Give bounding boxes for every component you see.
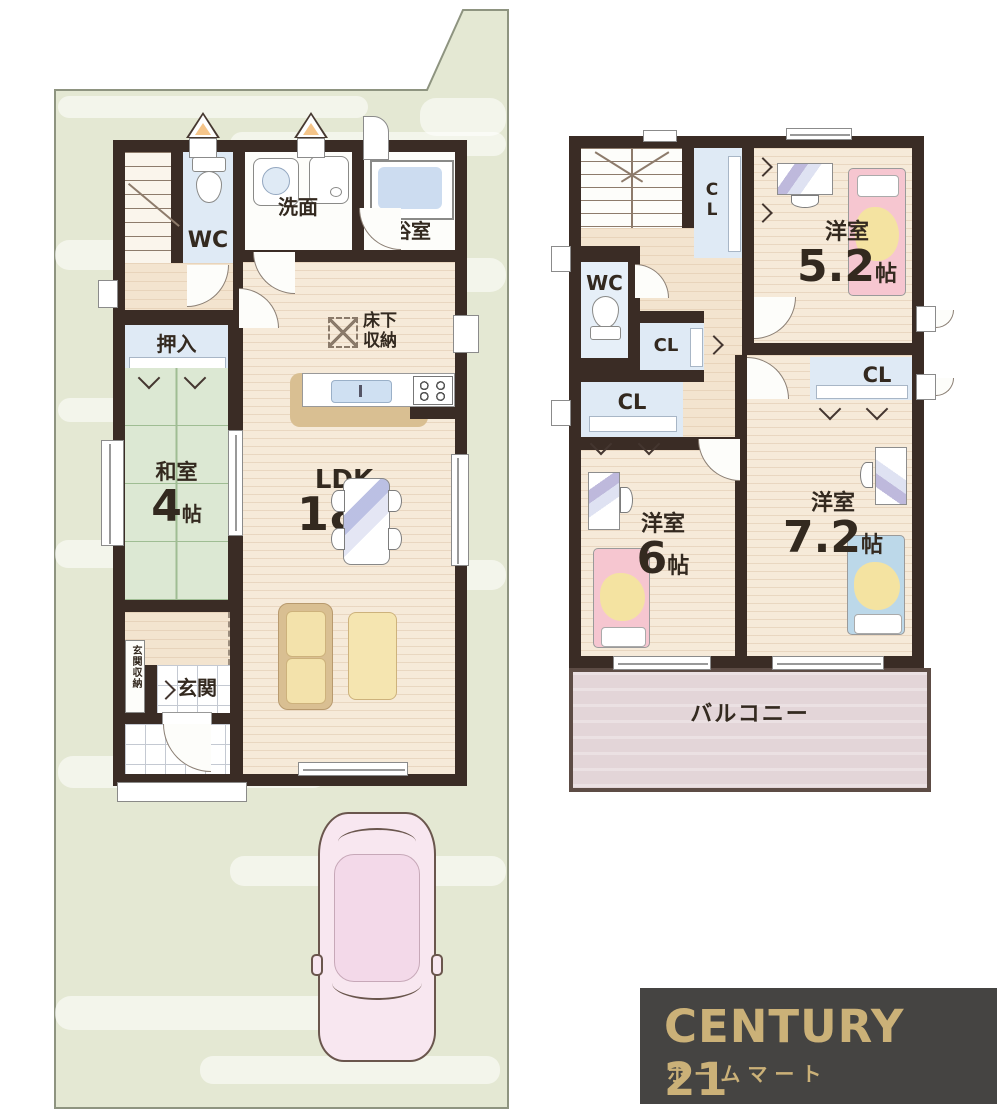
window-line	[303, 769, 405, 771]
closet-wide-label: CL	[581, 390, 683, 414]
ldk-bottom-window	[298, 762, 408, 776]
bedroom-7-2-size: 7.2帖	[763, 513, 903, 564]
balcony: バルコニー	[569, 668, 931, 792]
dining-window	[451, 454, 469, 566]
sliding-door-line	[235, 435, 237, 531]
floor2-bedroom-6: 洋室 6帖	[581, 450, 735, 656]
balcony-label: バルコニー	[573, 702, 927, 727]
window-line	[109, 444, 111, 544]
closet-door-band	[589, 416, 677, 432]
tatami-window	[101, 440, 124, 546]
bedroom-5-2-size: 5.2帖	[777, 242, 917, 293]
bedroom-7-2-window	[916, 374, 936, 400]
bedroom-7-2-size-number: 7.2	[783, 512, 861, 563]
kitchen-faucet-icon	[359, 385, 362, 397]
floor2-bedroom-7-2: CL 洋室 7.2帖	[747, 355, 912, 656]
wall	[581, 358, 640, 382]
floor2-stairs	[581, 148, 682, 228]
stairs-diagonal	[128, 183, 180, 227]
brand-logo-box: CENTURY 21 ホームマート	[640, 988, 997, 1104]
bed-pillow	[854, 614, 902, 634]
closet-7-2-label: CL	[842, 363, 912, 387]
vent-base	[189, 138, 217, 158]
bedroom-5-2-size-unit: 帖	[875, 262, 897, 287]
kitchen-half-wall	[410, 407, 455, 419]
floor1-oshiire-closet: 押入	[125, 325, 228, 368]
floor1-entrance-storage: 玄関収納	[125, 640, 145, 713]
wall	[637, 311, 704, 323]
tatami-size-label: 4帖	[125, 482, 228, 533]
closet-middle-label: CL	[640, 336, 692, 357]
floor2-left-window	[551, 400, 571, 426]
dining-chair	[388, 490, 402, 512]
bedroom-5-2-size-number: 5.2	[797, 241, 875, 292]
bedroom-6-size-number: 6	[637, 533, 668, 584]
stairs-top-window	[643, 130, 677, 142]
wall	[742, 148, 754, 343]
underfloor-storage-hatch	[328, 317, 358, 348]
floor2-closet-wide: CL	[581, 382, 683, 437]
kitchen-sink	[331, 380, 392, 403]
bathroom-window	[363, 116, 389, 160]
floor2-plan: CL WC CL CL	[569, 136, 924, 668]
bedroom-5-2-top-window	[786, 128, 852, 140]
toilet-bowl-icon	[196, 171, 222, 203]
closet-bifold-mark	[184, 367, 207, 390]
floor1-entrance-upper: 玄関	[157, 665, 230, 713]
closet-bifold-mark	[138, 367, 161, 390]
floor2-closet-middle: CL	[640, 323, 704, 370]
floor1-wc-room: WC	[183, 152, 233, 263]
wall	[637, 370, 704, 382]
vent-base	[297, 138, 325, 158]
dining-table	[343, 478, 390, 565]
car-mirror-left	[311, 954, 323, 976]
bedroom-5-2-window	[916, 306, 936, 332]
closet-door-band	[728, 156, 741, 252]
dining-chair	[331, 528, 345, 550]
floor1-entrance-lower	[125, 724, 230, 774]
oshiire-label: 押入	[125, 333, 228, 356]
closet-top-label: CL	[702, 180, 722, 220]
desk-chair	[791, 195, 819, 208]
dining-chair	[388, 528, 402, 550]
floor1-washroom: 洗面	[245, 152, 352, 250]
floor1-tatami-room: 和室 4帖	[125, 368, 228, 600]
entrance-label: 玄関	[165, 677, 229, 700]
closet-bifold-mark	[753, 203, 773, 223]
wall	[581, 246, 640, 262]
closet-bifold-mark	[753, 157, 773, 177]
car-windshield-line	[332, 966, 422, 1000]
window-line	[790, 134, 850, 136]
floor1-ldk-room: 床下収納 LDK 18帖	[243, 262, 455, 774]
sofa	[278, 603, 333, 710]
toilet-tank-icon	[590, 326, 621, 340]
window-line	[457, 458, 459, 564]
balcony-sliding-window	[613, 656, 711, 670]
bathtub-water	[378, 167, 442, 209]
car-mirror-right	[431, 954, 443, 976]
floor2-closet-7-2: CL	[810, 357, 912, 400]
floor2-left-window	[551, 246, 571, 272]
tatami-size-unit: 帖	[182, 502, 202, 526]
bed-pillow	[601, 627, 646, 647]
stairs-center-line	[631, 148, 633, 228]
window-line	[777, 663, 881, 665]
wall	[735, 355, 747, 656]
sofa-cushion	[286, 611, 326, 657]
floor-plan-page: WC 洗面 浴室 押入 和室	[0, 0, 1000, 1120]
kitchen-window	[453, 315, 479, 353]
bedroom-7-2-size-unit: 帖	[861, 533, 883, 558]
closet-bifold-mark	[819, 398, 842, 421]
sofa-cushion	[286, 658, 326, 704]
underfloor-storage-label: 床下収納	[363, 312, 403, 351]
bed-blanket-swirl	[854, 562, 900, 610]
tatami-sliding-door	[228, 430, 243, 536]
entrance-porch-step	[117, 782, 247, 802]
floor1-stairs	[125, 152, 171, 263]
dining-chair	[331, 490, 345, 512]
floor2-closet-top: CL	[694, 148, 742, 258]
desk-chair	[620, 487, 633, 513]
washroom-label: 洗面	[263, 196, 333, 219]
wc-label: WC	[183, 228, 233, 253]
brand-name: CENTURY 21	[664, 1000, 984, 1106]
bay-vent-window	[294, 112, 328, 160]
car-roof	[334, 854, 420, 982]
floor1-plan: WC 洗面 浴室 押入 和室	[113, 140, 467, 786]
desk	[777, 163, 833, 195]
stove-icon	[413, 376, 453, 405]
entrance-door-swing	[163, 724, 211, 772]
bed-pillow	[857, 175, 899, 197]
closet-bifold-mark	[866, 398, 889, 421]
stair-side-door	[98, 280, 118, 308]
bedroom-6-size-unit: 帖	[667, 554, 689, 579]
bay-vent-window	[186, 112, 220, 160]
brand-store-name: ホームマート	[667, 1058, 987, 1087]
wc2-label: WC	[581, 272, 628, 295]
wall	[742, 343, 912, 355]
desk-chair	[860, 462, 873, 488]
balcony-sliding-window	[772, 656, 884, 670]
sofa-ottoman	[348, 612, 397, 700]
car-rear-line	[338, 828, 416, 856]
window-line	[618, 663, 708, 665]
toilet-bowl-icon	[592, 296, 619, 328]
washbasin-icon	[262, 167, 290, 195]
floor2-wc-room: WC	[581, 262, 628, 358]
entrance-storage-label: 玄関収納	[129, 645, 141, 689]
tatami-size-number: 4	[151, 481, 182, 532]
car	[318, 806, 436, 1068]
bedroom-6-size: 6帖	[608, 534, 718, 585]
